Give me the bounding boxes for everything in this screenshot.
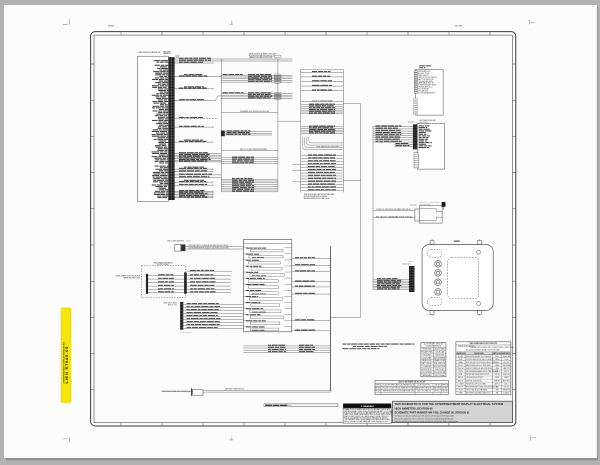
svg-text:FUEL 200-BK: FUEL 200-BK [435, 369, 443, 371]
svg-text:LEVEL: LEVEL [495, 368, 499, 370]
svg-text:IGN F411: IGN F411 [458, 365, 464, 367]
svg-text:FUEL 998-: FUEL 998- [442, 391, 449, 393]
svg-text:T135-PK: T135-PK [458, 371, 463, 373]
svg-text:F411-B: F411-B [495, 362, 499, 364]
svg-text:SWITCH: SWITCH [504, 371, 509, 373]
svg-text:FUEL GRID: FUEL GRID [503, 380, 510, 382]
svg-text:C458-YL: C458-YL [504, 383, 509, 385]
svg-text:998-BR: 998-BR [504, 377, 508, 379]
svg-text:J766-WH: J766-WH [434, 385, 439, 387]
svg-text:109-RD: 109-RD [495, 374, 499, 376]
svg-text:SWITCH: SWITCH [376, 385, 381, 387]
svg-text:ENG: ENG [496, 386, 499, 388]
svg-text:P922-BR POWER: P922-BR POWER [422, 351, 433, 353]
svg-text:POWER M550-WH J766-W: POWER M550-WH J766-W [418, 85, 436, 87]
svg-text:C458-YL SOL FEED C45: C458-YL SOL FEED C45 [417, 391, 431, 393]
svg-text:RETURN: RETURN [375, 388, 380, 390]
svg-text:451-OR PRESS: 451-OR PRESS [422, 372, 432, 374]
svg-text:306-GN J766-WH: 306-GN J766-WH [434, 372, 445, 374]
svg-text:T135-PK FUEL 200-B: T135-PK FUEL 200-B [418, 81, 432, 83]
svg-text:109-RD K927: 109-RD K927 [402, 264, 410, 266]
svg-text:FUEL 451-: FUEL 451- [503, 362, 510, 364]
svg-text:E963-OR: E963-OR [458, 386, 463, 388]
svg-text:K927-PU: K927-PU [409, 261, 414, 263]
svg-text:G826-GY SOL 451-OR F411: G826-GY SOL 451-OR F411 [418, 77, 437, 79]
svg-text:451-OR ECM 200-BK: 451-OR ECM 200-BK [420, 204, 432, 206]
svg-text:G826-G: G826-G [495, 371, 500, 373]
svg-text:PRE WIRE: PRE WIRE [163, 51, 170, 53]
svg-text:GRID: GRID [496, 389, 499, 391]
svg-text:M550-WH: M550-WH [458, 368, 464, 370]
svg-text:ENG HORN COOL: ENG HORN COOL [418, 71, 431, 73]
svg-text:RETURN: RETURN [458, 356, 463, 358]
svg-text:FUEL LEVEL FUE: FUEL LEVEL FUE [434, 363, 445, 365]
svg-text:RETURN: RETURN [375, 391, 380, 393]
svg-text:TEMP ECM: TEMP ECM [441, 385, 448, 387]
svg-text:FEED G826-GY: FEED G826-GY [418, 75, 428, 77]
svg-text:CAB WIRING HARNESS: CAB WIRING HARNESS [138, 51, 161, 54]
svg-text:E963-OR: E963-OR [458, 380, 463, 382]
svg-text:PRESS SIGN: PRESS SIGN [408, 122, 415, 124]
svg-text:E963-OR: E963-OR [458, 377, 463, 379]
svg-text:⚠ WARNING: ⚠ WARNING [361, 405, 374, 408]
svg-text:C458-YL FEED: C458-YL FEED [422, 357, 431, 359]
svg-text:200-BK: 200-BK [504, 359, 508, 361]
svg-text:M550-WH P922-B: M550-WH P922-B [434, 366, 445, 368]
svg-text:P922-BR T135: P922-BR T135 [418, 90, 428, 92]
svg-text:306-GN: 306-GN [458, 389, 463, 391]
svg-text:998-BR HORN: 998-BR HORN [423, 348, 432, 350]
svg-text:E963-OR: E963-OR [504, 386, 509, 388]
svg-text:109-RD T135-PK P922-: 109-RD T135-PK P922- [417, 385, 431, 387]
svg-text:AFTERTREATMENT DISPLAY HARNESS: AFTERTREATMENT DISPLAY HARNESS KIT [62, 341, 65, 384]
svg-text:LEVEL LEV: LEVEL LEV [503, 374, 510, 376]
svg-text:SCHEMATIC PART NUMBER 484-7435: SCHEMATIC PART NUMBER 484-7435, CHANGE 0… [395, 412, 470, 415]
svg-text:TEMP ENG K927-PU SWITCH F411-B: TEMP ENG K927-PU SWITCH F411-BU SOL G826… [466, 362, 496, 364]
svg-text:PRESS: PRESS [495, 359, 499, 361]
svg-text:LEVEL: LEVEL [459, 374, 463, 376]
svg-text:T135-PK GRID: T135-PK GRID [435, 354, 444, 356]
svg-text:C458-Y: C458-Y [495, 356, 499, 358]
svg-text:P922-BR M550-WH C458-YL E963: P922-BR M550-WH C458-YL E963 [466, 383, 486, 385]
svg-text:HIGH AMMETER LOCATION 60: HIGH AMMETER LOCATION 60 [395, 406, 433, 410]
svg-text:109-RD: 109-RD [458, 359, 462, 361]
svg-text:P922-BR GRID 200-BK TEMP ECM D: P922-BR GRID 200-BK TEMP ECM DIS [466, 374, 489, 376]
svg-text:THIS SCHEMATIC IS FOR THE AFTE: THIS SCHEMATIC IS FOR THE AFTERTREATMENT… [395, 402, 504, 406]
svg-text:PRESS M55: PRESS M55 [503, 389, 510, 391]
svg-text:ECM FUEL M550-WH FUEL: ECM FUEL M550-WH FUEL [466, 380, 482, 382]
